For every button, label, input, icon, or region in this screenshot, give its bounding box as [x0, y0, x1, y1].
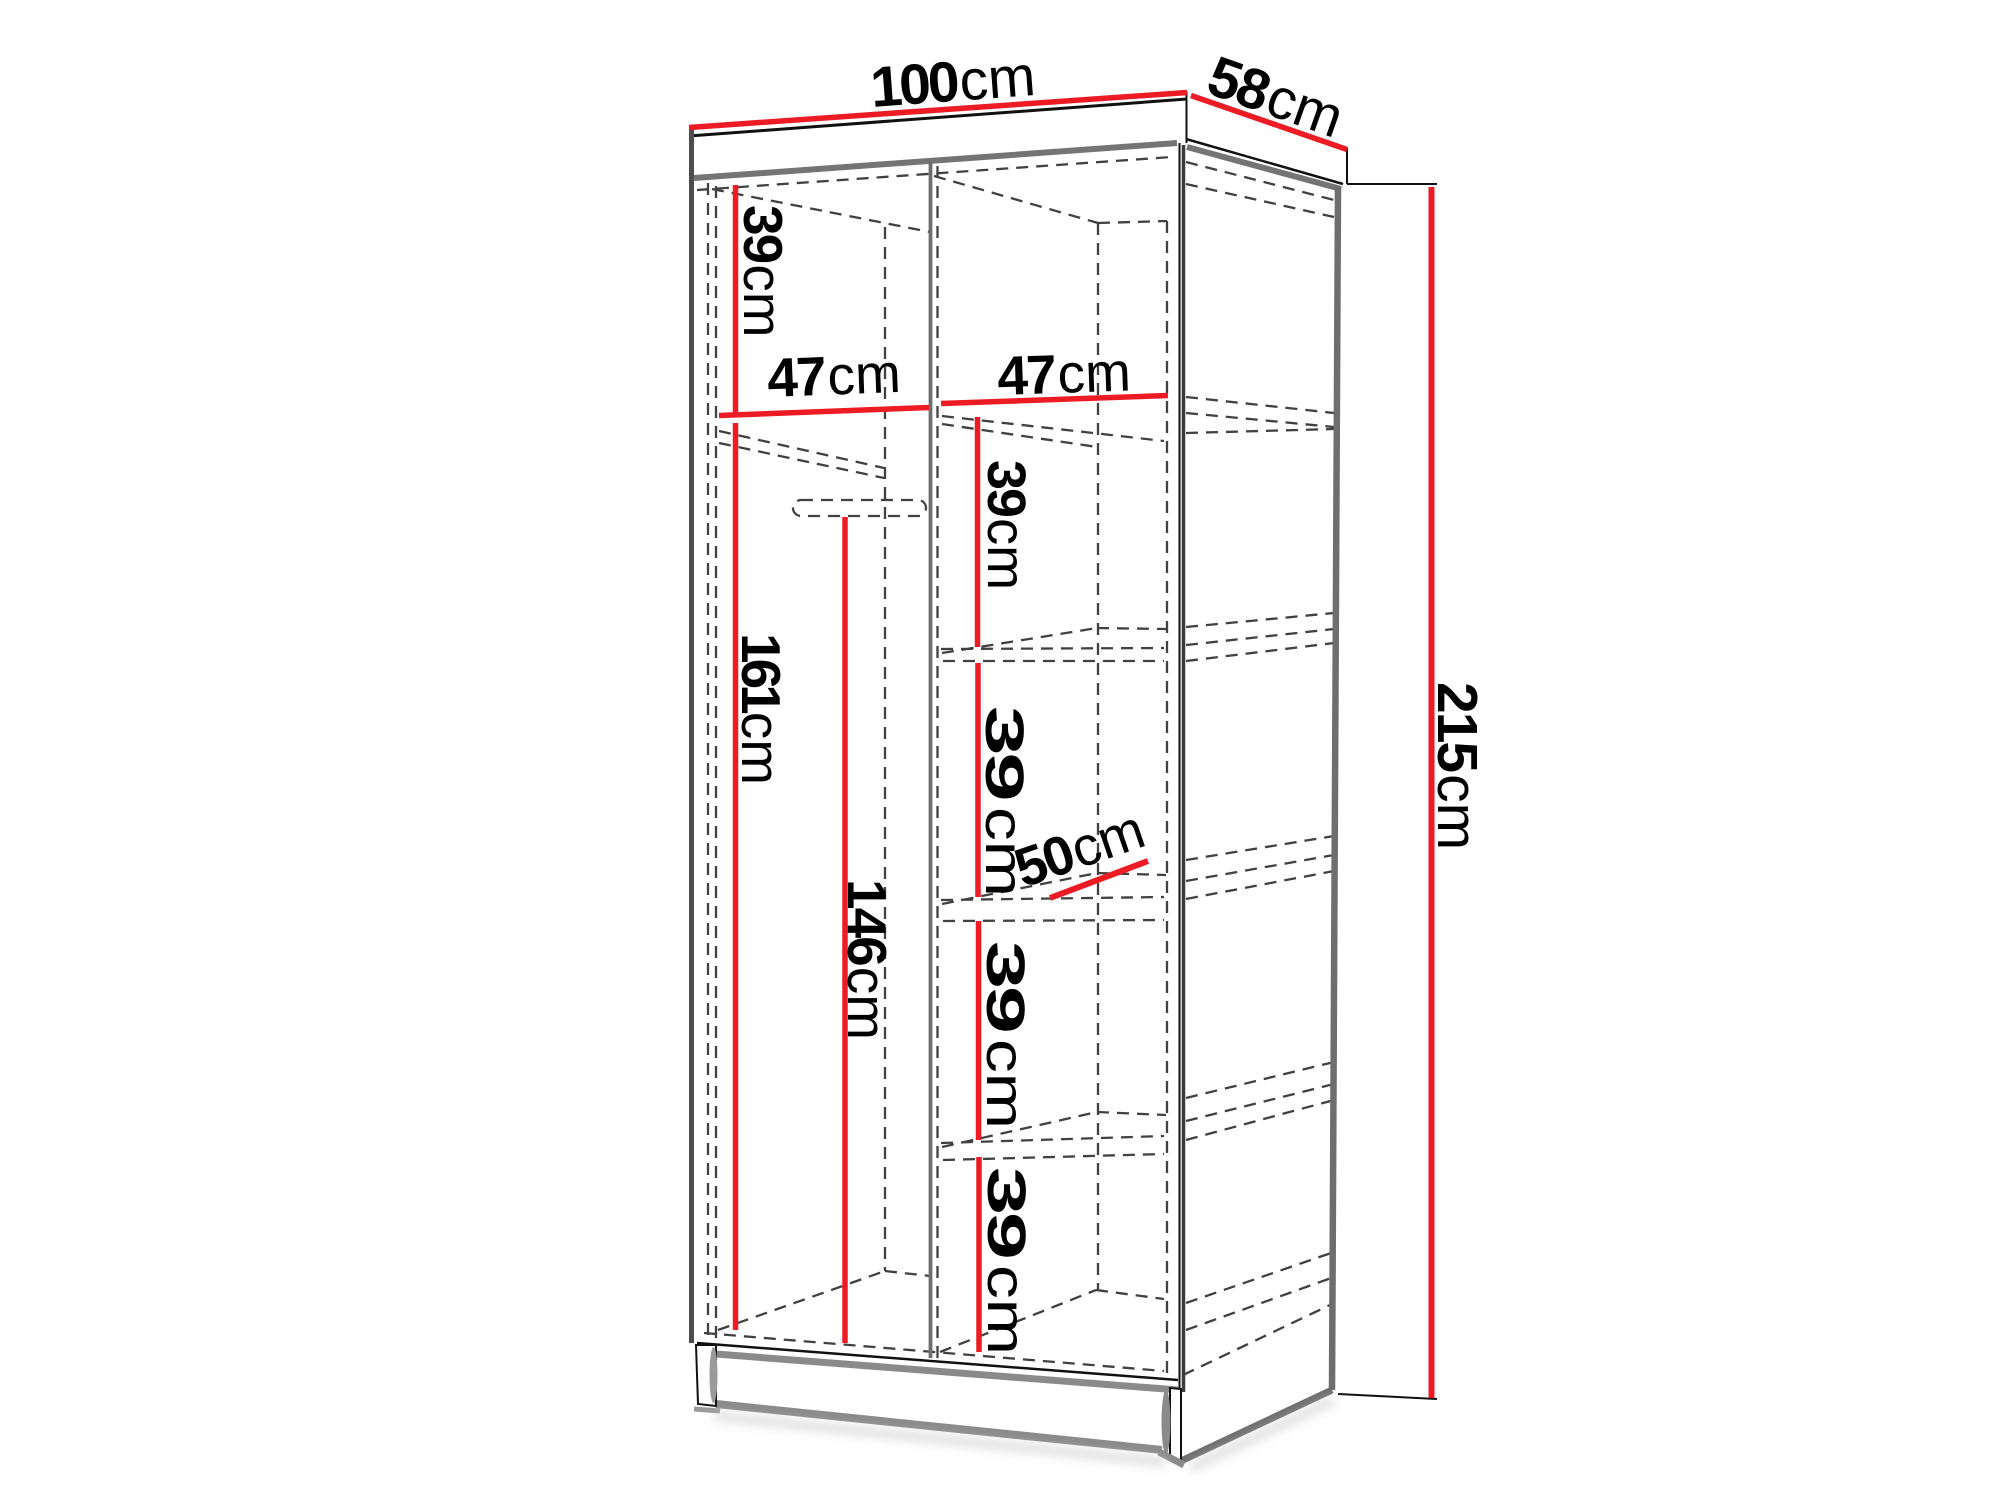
svg-text:161cm: 161cm: [730, 633, 792, 785]
svg-text:39cm: 39cm: [732, 205, 794, 338]
svg-text:215cm: 215cm: [1425, 682, 1489, 850]
svg-text:47cm: 47cm: [766, 342, 902, 409]
svg-text:39: 39: [974, 706, 1035, 799]
svg-text:47cm: 47cm: [996, 340, 1132, 407]
svg-text:146cm: 146cm: [836, 879, 898, 1040]
svg-text:39: 39: [976, 1167, 1036, 1257]
svg-text:cm: cm: [976, 1039, 1036, 1129]
svg-text:100cm: 100cm: [868, 44, 1037, 120]
svg-text:39cm: 39cm: [976, 460, 1036, 590]
svg-text:58cm: 58cm: [1200, 44, 1352, 151]
svg-text:cm: cm: [977, 1265, 1037, 1355]
svg-text:39: 39: [975, 941, 1035, 1031]
